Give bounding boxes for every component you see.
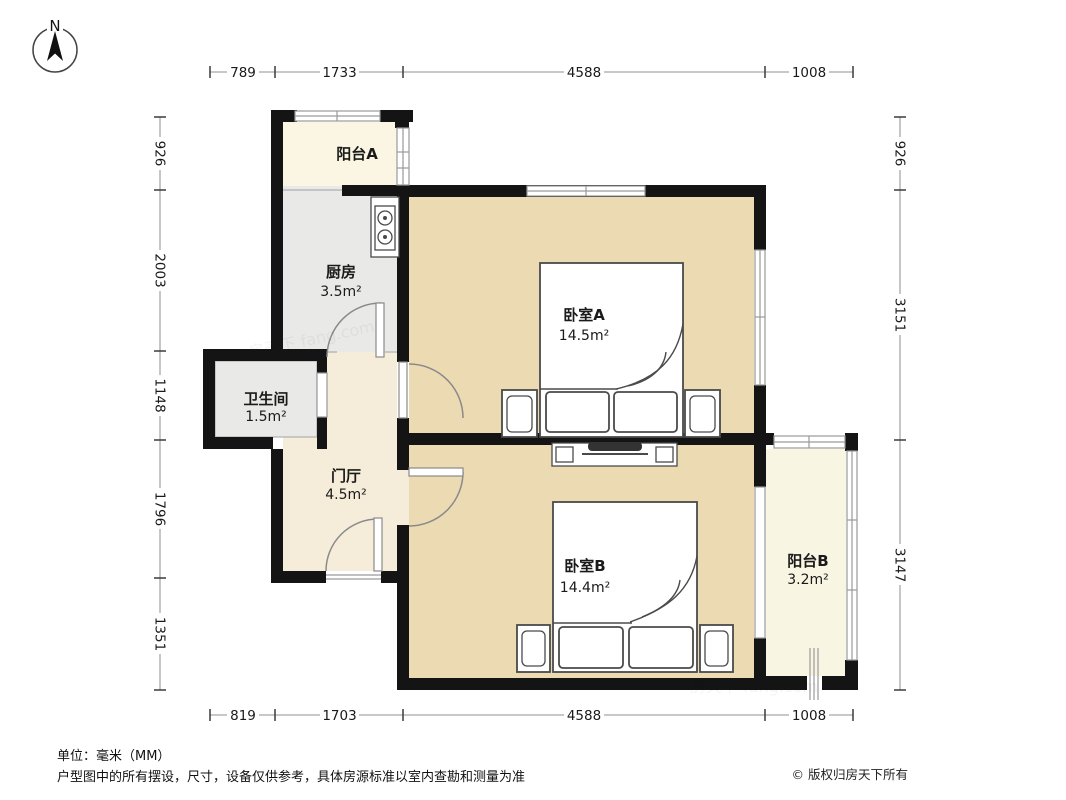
entrance-threshold (326, 571, 381, 583)
wall (317, 417, 327, 449)
wall (271, 449, 283, 583)
dimension-label: 2003 (152, 253, 168, 287)
foyer-label: 门厅 (331, 467, 361, 485)
tv-screen (588, 442, 642, 451)
balcony-a-label: 阳台A (336, 145, 378, 163)
wall (271, 110, 283, 352)
balcony-b-label: 阳台B (787, 552, 828, 570)
dimension-label: 789 (230, 65, 256, 81)
kitchen-area: 3.5m² (320, 284, 362, 300)
balcony-b-area: 3.2m² (787, 572, 829, 588)
bathroom-area: 1.5m² (245, 409, 287, 425)
burner-dot (383, 216, 387, 220)
burner-dot (383, 235, 387, 239)
bedroom-a-label: 卧室A (563, 306, 605, 324)
dimension-label: 1703 (322, 708, 356, 724)
dimension-label: 1148 (152, 378, 168, 412)
floorplan-page: N (0, 0, 1066, 800)
bedroom-a-area: 14.5m² (559, 328, 609, 344)
stove-icon (371, 197, 399, 257)
dimension-bottom: 819 1703 4588 1008 (210, 707, 853, 724)
footer: 单位：毫米（MM） 户型图中的所有摆设，尺寸，设备仅供参考，具体房源标准以室内查… (57, 748, 908, 785)
wall (381, 571, 397, 583)
bathroom-opening (317, 373, 327, 417)
dimension-label: 1008 (792, 708, 826, 724)
disclaimer: 户型图中的所有摆设，尺寸，设备仅供参考，具体房源标准以室内查勘和测量为准 (57, 769, 525, 785)
foyer-area: 4.5m² (325, 487, 367, 503)
nightstand-top (705, 631, 728, 666)
floorplan-canvas: N (0, 0, 1066, 800)
nightstand-top (690, 396, 715, 432)
wall (203, 437, 273, 449)
cabinet-box (556, 447, 573, 462)
wall (317, 349, 327, 373)
wall (754, 185, 766, 250)
nightstand-top (522, 631, 545, 666)
dimension-label: 1008 (792, 65, 826, 81)
dimension-right: 926 3151 3147 (892, 117, 909, 690)
wall (845, 433, 858, 451)
tv-cabinet-icon (552, 442, 677, 466)
dimension-label: 3151 (892, 298, 908, 332)
bedroom-b-door-leaf (409, 468, 463, 476)
wall (822, 676, 845, 690)
dimension-label: 4588 (567, 65, 601, 81)
wall (203, 349, 215, 449)
wall (395, 110, 409, 128)
dimension-label: 4588 (567, 708, 601, 724)
dimension-left: 926 2003 1148 1796 1351 (152, 117, 169, 690)
wall (845, 660, 858, 690)
bedroom-a-door-leaf (399, 362, 407, 418)
bedroom-b-label: 卧室B (564, 557, 605, 575)
wall (271, 571, 326, 583)
dimension-label: 1796 (152, 492, 168, 526)
dimension-label: 1733 (322, 65, 356, 81)
north-compass: N (33, 17, 77, 72)
unit-note: 单位：毫米（MM） (57, 748, 170, 764)
pillow (629, 627, 693, 668)
copyright: © 版权归房天下所有 (792, 767, 908, 782)
cabinet-box (656, 447, 673, 462)
pillow (546, 392, 609, 432)
wall (397, 525, 409, 690)
dimension-label: 1351 (152, 617, 168, 651)
entrance-door-leaf (374, 518, 382, 571)
dimension-top: 789 1733 4588 1008 (210, 64, 853, 81)
balcony-door-opening (755, 487, 765, 638)
dimension-label: 819 (230, 708, 256, 724)
dimension-label: 926 (152, 141, 168, 167)
bedroom-b-door-gap (397, 470, 409, 525)
watermark: 房天下 fang.com (690, 677, 818, 696)
pillow (559, 627, 623, 668)
bathroom-label: 卫生间 (243, 390, 288, 408)
pillow (614, 392, 677, 432)
nightstand-top (507, 396, 532, 432)
kitchen-door-leaf (376, 303, 384, 357)
dimension-label: 926 (892, 141, 908, 167)
dimension-label: 3147 (892, 548, 908, 582)
bedroom-b-area: 14.4m² (560, 580, 610, 596)
kitchen-label: 厨房 (326, 263, 356, 281)
